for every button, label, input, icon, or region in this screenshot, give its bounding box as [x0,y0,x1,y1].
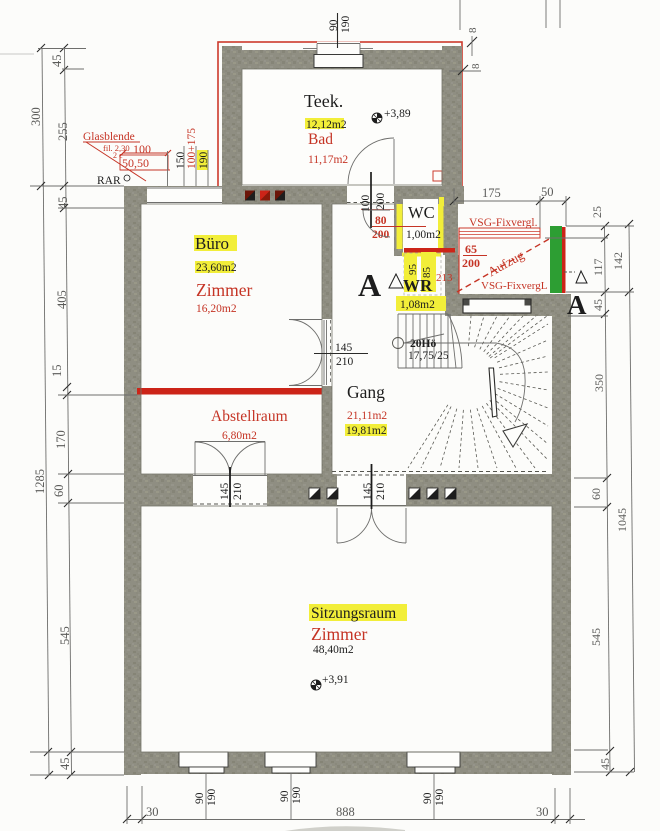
svg-text:405: 405 [55,290,69,309]
svg-text:Bad: Bad [308,131,333,148]
svg-text:1285: 1285 [33,469,47,494]
svg-text:30: 30 [146,805,159,819]
svg-text:100: 100 [133,142,151,156]
svg-text:Gang: Gang [347,382,385,402]
svg-text:60: 60 [52,485,66,498]
svg-text:142: 142 [611,252,625,270]
svg-text:21,11m2: 21,11m2 [347,410,387,422]
svg-text:145: 145 [362,483,374,501]
svg-text:45: 45 [58,758,72,771]
svg-text:Glasblende: Glasblende [83,131,135,143]
svg-text:Teek.: Teek. [304,91,343,111]
svg-text:1,00m2: 1,00m2 [406,229,441,241]
svg-text:VSG-Fixvergl.: VSG-Fixvergl. [469,217,538,229]
svg-text:A: A [358,267,381,303]
svg-text:90: 90 [422,792,434,804]
svg-text:50: 50 [541,185,554,199]
svg-text:50,50: 50,50 [122,156,149,170]
svg-text:Zimmer: Zimmer [311,624,368,644]
svg-text:+3,91: +3,91 [322,674,349,686]
svg-text:170: 170 [54,430,68,449]
svg-text:A: A [567,290,587,320]
svg-text:6,80m2: 6,80m2 [222,430,257,442]
svg-text:213: 213 [436,272,453,284]
svg-text:Abstellraum: Abstellraum [211,408,288,425]
svg-text:545: 545 [58,626,72,645]
svg-text:190: 190 [291,787,303,805]
svg-text:80: 80 [375,215,387,227]
svg-text:Büro: Büro [195,234,229,253]
svg-text:888: 888 [336,805,355,819]
svg-text:12,12m2: 12,12m2 [306,119,347,131]
svg-text:210: 210 [232,483,244,501]
svg-text:190: 190 [434,789,446,807]
svg-text:200: 200 [375,193,387,211]
svg-text:117: 117 [591,258,605,276]
svg-text:145: 145 [219,483,231,501]
svg-text:175: 175 [482,186,501,200]
svg-text:145: 145 [335,342,353,354]
svg-text:190: 190 [340,16,352,34]
svg-text:1045: 1045 [615,508,629,532]
svg-text:WC: WC [408,203,435,222]
svg-text:90: 90 [194,792,206,804]
svg-text:190: 190 [206,789,218,807]
svg-text:45: 45 [598,758,612,770]
svg-text:23,60m2: 23,60m2 [196,262,237,274]
svg-text:200: 200 [462,256,480,270]
svg-text:Zimmer: Zimmer [196,280,253,300]
svg-text:300: 300 [29,107,43,126]
svg-text:60: 60 [589,488,603,500]
svg-text:25: 25 [590,206,604,218]
svg-text:45: 45 [56,197,70,210]
svg-text:95: 95 [407,264,419,276]
svg-text:45: 45 [591,299,605,311]
svg-text:45: 45 [50,55,64,68]
svg-text:17,75/25: 17,75/25 [408,350,449,362]
svg-text:65: 65 [465,242,477,256]
svg-text:350: 350 [592,374,606,392]
svg-text:30: 30 [536,805,549,819]
svg-text:210: 210 [375,483,387,501]
svg-text:210: 210 [336,356,354,368]
svg-text:545: 545 [589,628,603,646]
svg-text:1,08m2: 1,08m2 [400,299,435,311]
svg-text:90: 90 [328,19,340,31]
svg-text:+3,89: +3,89 [384,108,411,120]
svg-text:WR: WR [403,276,433,295]
svg-text:90: 90 [279,790,291,802]
svg-text:8: 8 [470,63,482,69]
svg-text:255: 255 [56,122,70,141]
svg-text:8: 8 [467,27,479,33]
svg-text:19,81m2: 19,81m2 [346,425,387,437]
svg-text:48,40m2: 48,40m2 [313,644,354,656]
svg-text:RAR: RAR [97,175,121,187]
svg-text:15: 15 [50,365,64,378]
svg-text:16,20m2: 16,20m2 [196,303,237,315]
svg-text:11,17m2: 11,17m2 [308,154,348,166]
svg-text:20Hö: 20Hö [410,338,436,350]
svg-text:VSG-FixvergL: VSG-FixvergL [481,280,548,292]
svg-text:Sitzungsraum: Sitzungsraum [311,605,396,622]
